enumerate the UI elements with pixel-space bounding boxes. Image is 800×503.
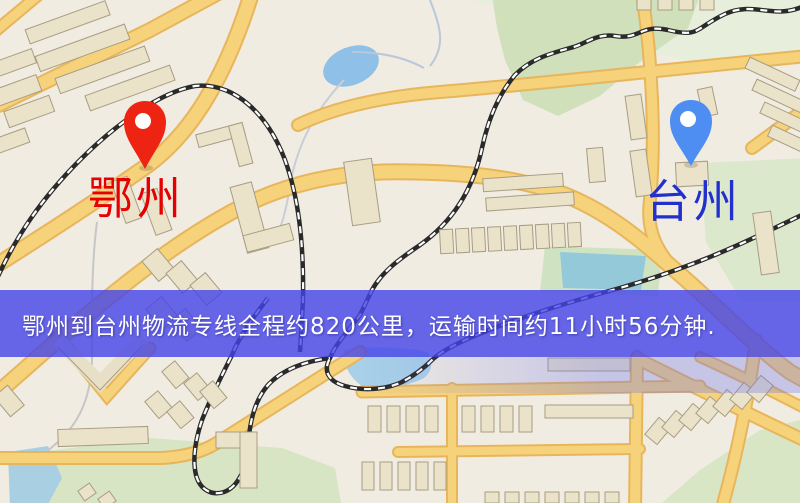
- destination-city-label: 台州: [645, 179, 741, 224]
- route-info-banner: 鄂州到台州物流专线全程约820公里，运输时间约11小时56分钟.: [0, 290, 800, 357]
- map[interactable]: 鄂州 台州 鄂州到台州物流专线全程约820公里，运输时间约11小时56分钟.: [0, 0, 800, 503]
- origin-city-label: 鄂州: [88, 176, 184, 221]
- destination-pin-icon[interactable]: [670, 100, 712, 168]
- route-info-text: 鄂州到台州物流专线全程约820公里，运输时间约11小时56分钟.: [0, 307, 716, 341]
- map-canvas: [0, 0, 800, 503]
